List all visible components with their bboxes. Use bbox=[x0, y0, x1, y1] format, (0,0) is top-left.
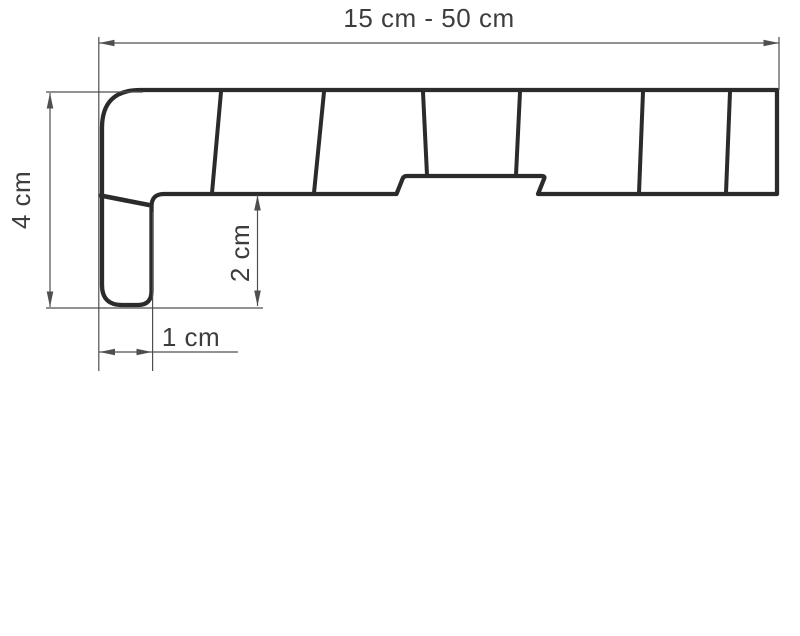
total-height-label: 4 cm bbox=[6, 171, 36, 229]
profile-outline-group bbox=[101, 90, 778, 305]
diagram-canvas: 15 cm - 50 cm 4 cm 2 cm 1 cm bbox=[0, 0, 800, 636]
arrowhead-left-icon bbox=[100, 349, 116, 356]
front-nose-height-label: 2 cm bbox=[225, 224, 255, 282]
arrowhead-right-icon bbox=[764, 40, 780, 47]
front-nose-width-label: 1 cm bbox=[162, 322, 220, 352]
arrowhead-up-icon bbox=[254, 195, 261, 211]
windowsill-profile-diagram: 15 cm - 50 cm 4 cm 2 cm 1 cm bbox=[0, 0, 800, 636]
width-range-label: 15 cm - 50 cm bbox=[343, 3, 514, 33]
arrowhead-left-icon bbox=[99, 40, 115, 47]
arrowhead-up-icon bbox=[47, 93, 54, 109]
arrowhead-down-icon bbox=[254, 291, 261, 307]
profile-outline bbox=[102, 90, 777, 305]
arrowhead-down-icon bbox=[47, 292, 54, 308]
arrowhead-right-icon bbox=[137, 349, 153, 356]
dimension-group bbox=[46, 37, 779, 371]
